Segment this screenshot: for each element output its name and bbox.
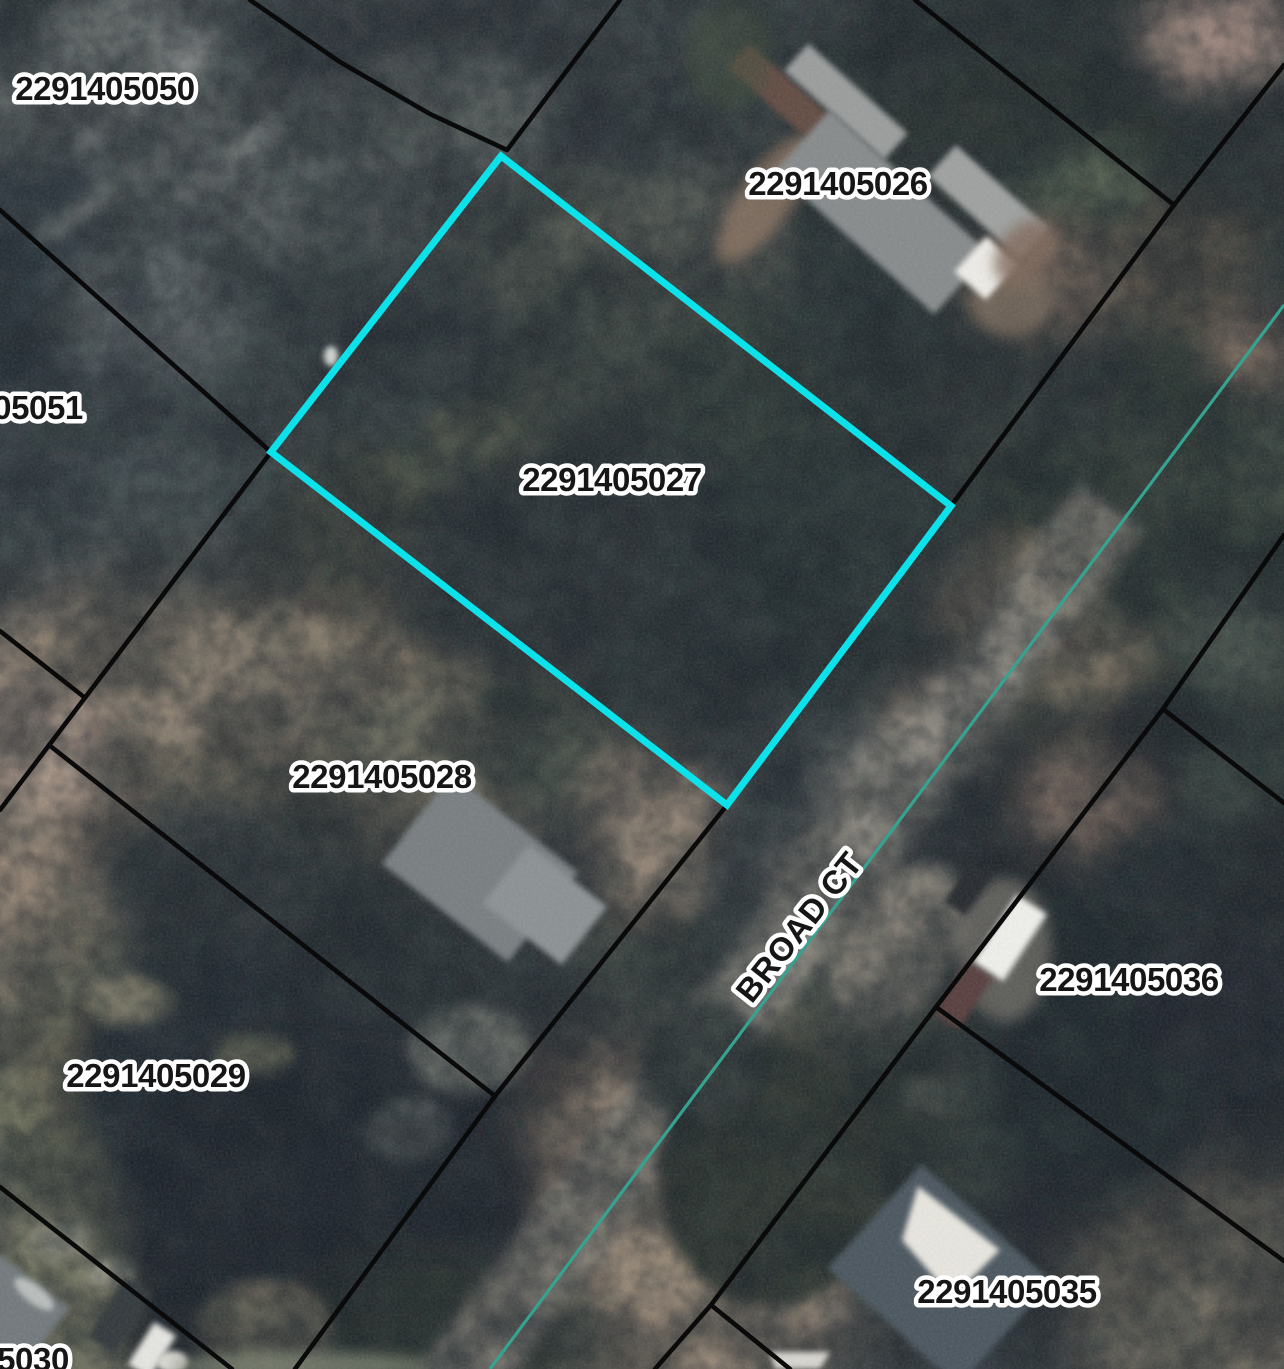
svg-text:05051: 05051 [0, 389, 83, 426]
svg-text:2291405050: 2291405050 [15, 70, 195, 107]
svg-text:5030: 5030 [0, 1341, 69, 1369]
svg-text:2291405028: 2291405028 [292, 758, 472, 795]
svg-text:2291405029: 2291405029 [66, 1057, 246, 1094]
svg-text:2291405026: 2291405026 [748, 165, 928, 202]
svg-text:2291405035: 2291405035 [917, 1273, 1097, 1310]
svg-text:2291405027: 2291405027 [522, 461, 702, 498]
svg-text:2291405036: 2291405036 [1039, 961, 1219, 998]
